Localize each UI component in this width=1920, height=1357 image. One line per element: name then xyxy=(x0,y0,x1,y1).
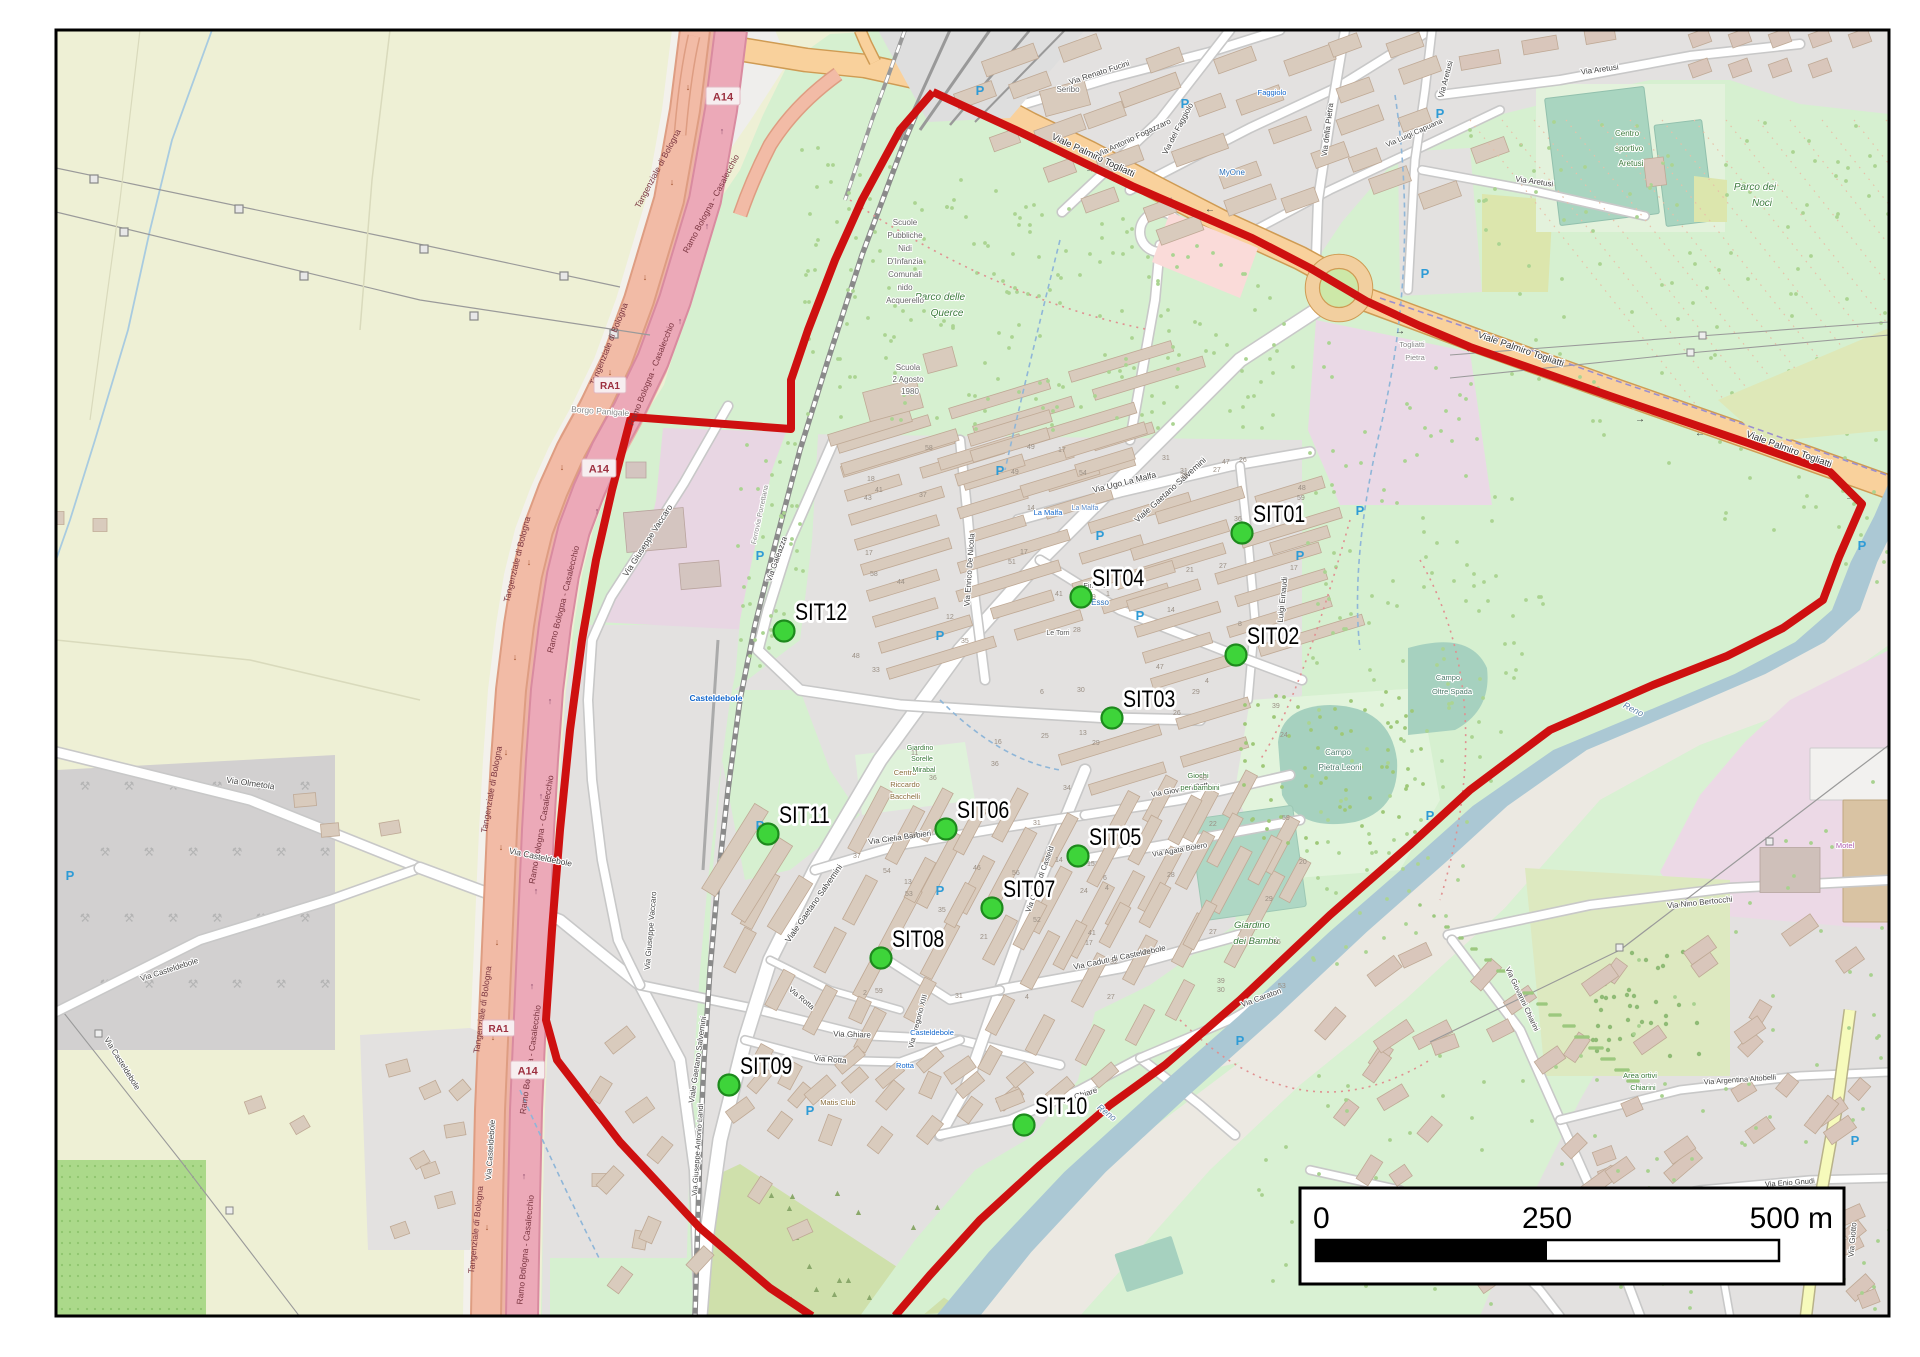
svg-text:▲: ▲ xyxy=(788,1191,797,1201)
svg-text:27: 27 xyxy=(1209,929,1217,936)
svg-text:⚒: ⚒ xyxy=(276,845,287,859)
svg-text:16: 16 xyxy=(994,739,1002,746)
svg-text:24: 24 xyxy=(1080,888,1088,895)
svg-text:SIT12: SIT12 xyxy=(795,598,847,626)
svg-text:P: P xyxy=(936,883,945,898)
svg-text:14: 14 xyxy=(1027,505,1035,512)
svg-text:17: 17 xyxy=(1020,549,1028,556)
svg-text:30: 30 xyxy=(1217,987,1225,994)
svg-text:1: 1 xyxy=(1106,591,1110,598)
svg-text:12: 12 xyxy=(946,614,954,621)
svg-text:SIT04: SIT04 xyxy=(1092,564,1144,592)
svg-text:⚒: ⚒ xyxy=(100,845,111,859)
svg-text:P: P xyxy=(1858,538,1867,553)
svg-text:500 m: 500 m xyxy=(1750,1202,1833,1235)
svg-text:250: 250 xyxy=(1522,1202,1572,1235)
svg-text:▲: ▲ xyxy=(835,1275,844,1285)
svg-text:47: 47 xyxy=(1156,664,1164,671)
svg-text:39: 39 xyxy=(1217,978,1225,985)
svg-text:↓: ↓ xyxy=(608,367,613,377)
svg-text:49: 49 xyxy=(1027,444,1035,451)
svg-text:29: 29 xyxy=(1092,740,1100,747)
svg-text:Matis Club: Matis Club xyxy=(820,1098,855,1107)
svg-text:P: P xyxy=(1096,528,1105,543)
svg-text:4: 4 xyxy=(1205,678,1209,685)
svg-text:→: → xyxy=(1635,414,1645,425)
svg-text:Via Ghiare: Via Ghiare xyxy=(833,1029,871,1039)
svg-text:Togliatti: Togliatti xyxy=(1399,340,1425,349)
svg-text:A14: A14 xyxy=(713,92,734,104)
svg-text:⚒: ⚒ xyxy=(232,977,243,991)
svg-text:P: P xyxy=(1436,106,1445,121)
svg-text:14: 14 xyxy=(1055,857,1063,864)
svg-text:SIT01: SIT01 xyxy=(1253,500,1305,528)
svg-text:Faggiolo: Faggiolo xyxy=(1258,88,1287,97)
svg-text:La Malfa: La Malfa xyxy=(1072,505,1099,512)
svg-text:47: 47 xyxy=(1222,459,1230,466)
svg-text:Nidi: Nidi xyxy=(898,244,912,253)
svg-text:53: 53 xyxy=(905,891,913,898)
svg-text:SIT03: SIT03 xyxy=(1123,685,1175,713)
svg-text:⚒: ⚒ xyxy=(80,779,91,793)
svg-text:Le Torri: Le Torri xyxy=(1046,630,1070,637)
svg-text:P: P xyxy=(66,868,75,883)
svg-text:↓: ↓ xyxy=(513,652,518,662)
svg-text:4: 4 xyxy=(1105,885,1109,892)
svg-text:21: 21 xyxy=(1143,949,1151,956)
svg-text:22: 22 xyxy=(1209,821,1217,828)
svg-text:Seribo: Seribo xyxy=(1056,85,1080,94)
svg-text:Mirabal: Mirabal xyxy=(913,767,936,774)
svg-text:nido: nido xyxy=(897,283,913,292)
svg-text:↑: ↑ xyxy=(530,981,535,991)
svg-text:Rotta: Rotta xyxy=(896,1061,915,1070)
svg-text:37: 37 xyxy=(919,492,927,499)
svg-text:per bambini: per bambini xyxy=(1180,783,1220,792)
svg-text:Area ortivi: Area ortivi xyxy=(1623,1071,1657,1080)
svg-text:43: 43 xyxy=(864,495,872,502)
svg-text:25: 25 xyxy=(1041,733,1049,740)
svg-text:↓: ↓ xyxy=(670,177,675,187)
svg-text:↑: ↑ xyxy=(548,696,553,706)
svg-text:P: P xyxy=(1236,1033,1245,1048)
svg-text:53: 53 xyxy=(1278,983,1286,990)
svg-text:↓: ↓ xyxy=(499,842,504,852)
svg-text:Noci: Noci xyxy=(1752,198,1773,209)
svg-text:Pietra Leoni: Pietra Leoni xyxy=(1319,763,1362,772)
svg-text:11: 11 xyxy=(911,750,918,757)
svg-text:44: 44 xyxy=(897,579,905,586)
svg-text:2: 2 xyxy=(863,990,867,997)
svg-text:15: 15 xyxy=(1087,861,1095,868)
svg-text:▲: ▲ xyxy=(830,1289,839,1299)
svg-text:P: P xyxy=(1356,503,1365,518)
svg-text:13: 13 xyxy=(1079,730,1087,737)
svg-text:27: 27 xyxy=(1213,467,1221,474)
svg-text:P: P xyxy=(1421,266,1430,281)
svg-text:54: 54 xyxy=(883,868,891,875)
svg-text:⚒: ⚒ xyxy=(144,845,155,859)
svg-text:▲: ▲ xyxy=(767,1190,776,1200)
svg-text:SIT10: SIT10 xyxy=(1035,1092,1087,1120)
svg-text:Campo: Campo xyxy=(1436,673,1460,682)
svg-text:sportivo: sportivo xyxy=(1615,144,1644,153)
svg-text:58: 58 xyxy=(870,571,878,578)
svg-text:Chiarini: Chiarini xyxy=(1630,1083,1656,1092)
svg-text:A14: A14 xyxy=(589,464,610,476)
svg-text:SIT06: SIT06 xyxy=(957,796,1009,824)
svg-text:31: 31 xyxy=(955,993,963,1000)
svg-text:⚒: ⚒ xyxy=(300,779,311,793)
svg-text:27: 27 xyxy=(1219,563,1227,570)
svg-text:⚒: ⚒ xyxy=(80,911,91,925)
svg-text:27: 27 xyxy=(1107,994,1115,1001)
svg-text:P: P xyxy=(806,1103,815,1118)
svg-text:36: 36 xyxy=(1273,939,1281,946)
svg-text:▲: ▲ xyxy=(909,1222,918,1232)
svg-text:SIT11: SIT11 xyxy=(779,801,830,829)
svg-text:29: 29 xyxy=(1192,689,1200,696)
svg-text:P: P xyxy=(996,463,1005,478)
svg-text:36: 36 xyxy=(991,761,999,768)
svg-text:58: 58 xyxy=(1199,775,1207,782)
svg-text:P: P xyxy=(936,628,945,643)
svg-text:33: 33 xyxy=(872,667,880,674)
svg-text:20: 20 xyxy=(1299,859,1307,866)
svg-text:⚒: ⚒ xyxy=(188,977,199,991)
svg-text:▲: ▲ xyxy=(854,1207,863,1217)
svg-text:↑: ↑ xyxy=(678,316,683,326)
svg-text:↑: ↑ xyxy=(720,126,725,136)
svg-text:P: P xyxy=(1296,548,1305,563)
svg-text:P: P xyxy=(1181,96,1190,111)
svg-text:6: 6 xyxy=(1040,689,1044,696)
svg-text:⚒: ⚒ xyxy=(212,911,223,925)
svg-text:Scuole: Scuole xyxy=(893,218,918,227)
svg-text:▲: ▲ xyxy=(833,1188,842,1198)
svg-text:Pietra: Pietra xyxy=(1405,353,1425,362)
svg-text:24: 24 xyxy=(1280,732,1288,739)
svg-text:26: 26 xyxy=(1239,457,1247,464)
svg-text:32: 32 xyxy=(1110,959,1118,966)
svg-text:Sorelle: Sorelle xyxy=(911,756,933,763)
svg-text:⚒: ⚒ xyxy=(320,977,331,991)
svg-text:SIT07: SIT07 xyxy=(1003,875,1055,903)
svg-text:SIT08: SIT08 xyxy=(892,925,944,953)
svg-text:39: 39 xyxy=(1272,703,1280,710)
svg-text:Motel: Motel xyxy=(1836,841,1855,850)
svg-text:⚒: ⚒ xyxy=(124,911,135,925)
svg-text:Bacchelli: Bacchelli xyxy=(890,792,920,801)
svg-text:La Malfa: La Malfa xyxy=(1034,508,1064,517)
svg-text:↑: ↑ xyxy=(522,1171,527,1181)
svg-text:▲: ▲ xyxy=(844,1275,853,1285)
svg-text:SIT09: SIT09 xyxy=(740,1052,792,1080)
svg-text:⚒: ⚒ xyxy=(276,977,287,991)
svg-text:Casteldebole: Casteldebole xyxy=(690,693,743,703)
svg-text:29: 29 xyxy=(1265,896,1273,903)
svg-text:28: 28 xyxy=(1073,627,1081,634)
svg-text:35: 35 xyxy=(938,907,946,914)
svg-text:21: 21 xyxy=(1186,567,1194,574)
svg-text:37: 37 xyxy=(853,853,861,860)
svg-text:⚒: ⚒ xyxy=(232,845,243,859)
svg-text:17: 17 xyxy=(1058,447,1066,454)
svg-text:↓: ↓ xyxy=(560,462,565,472)
svg-text:Querce: Querce xyxy=(931,308,964,319)
svg-text:P: P xyxy=(756,548,765,563)
svg-text:SIT02: SIT02 xyxy=(1247,622,1299,650)
svg-text:17: 17 xyxy=(1085,940,1093,947)
svg-text:↓: ↓ xyxy=(485,1222,490,1232)
svg-text:54: 54 xyxy=(1079,470,1087,477)
svg-text:Pubbliche: Pubbliche xyxy=(887,231,923,240)
svg-text:MyOne: MyOne xyxy=(1219,168,1245,177)
svg-text:14: 14 xyxy=(1167,607,1175,614)
svg-text:35: 35 xyxy=(961,638,969,645)
svg-text:34: 34 xyxy=(1063,785,1071,792)
svg-text:▲: ▲ xyxy=(812,1284,821,1294)
svg-text:17: 17 xyxy=(1290,565,1298,572)
svg-text:31: 31 xyxy=(1033,820,1041,827)
svg-text:36: 36 xyxy=(909,832,917,839)
svg-text:8: 8 xyxy=(1238,621,1242,628)
svg-text:RA1: RA1 xyxy=(600,381,620,392)
svg-text:1980: 1980 xyxy=(901,387,919,396)
svg-text:41: 41 xyxy=(1088,930,1096,937)
svg-text:⚒: ⚒ xyxy=(320,845,331,859)
svg-text:2 Agosto: 2 Agosto xyxy=(892,375,924,384)
svg-text:13: 13 xyxy=(904,879,912,886)
svg-text:Riccardo: Riccardo xyxy=(890,780,920,789)
svg-text:⚒: ⚒ xyxy=(188,845,199,859)
svg-text:A14: A14 xyxy=(518,1066,539,1078)
svg-text:↓: ↓ xyxy=(504,747,509,757)
svg-text:Aretusi: Aretusi xyxy=(1619,159,1644,168)
svg-text:Scuola: Scuola xyxy=(896,363,921,372)
svg-text:↓: ↓ xyxy=(643,272,648,282)
svg-text:↓: ↓ xyxy=(686,82,691,92)
svg-text:46: 46 xyxy=(973,865,981,872)
svg-text:0: 0 xyxy=(1313,1202,1330,1235)
svg-text:58: 58 xyxy=(925,445,933,452)
svg-text:RA1: RA1 xyxy=(489,1024,509,1035)
svg-text:Oltre Spada: Oltre Spada xyxy=(1432,687,1473,696)
svg-text:48: 48 xyxy=(1298,485,1306,492)
svg-text:Giardino: Giardino xyxy=(1234,920,1270,931)
svg-text:⚒: ⚒ xyxy=(168,911,179,925)
svg-text:P: P xyxy=(1136,608,1145,623)
svg-text:←: ← xyxy=(1205,204,1215,215)
svg-text:35: 35 xyxy=(1180,473,1188,480)
svg-text:P: P xyxy=(1426,808,1435,823)
svg-text:28: 28 xyxy=(1167,872,1175,879)
svg-text:18: 18 xyxy=(867,476,875,483)
svg-text:36: 36 xyxy=(929,775,937,782)
svg-text:49: 49 xyxy=(1011,469,1019,476)
svg-text:D'Infanzia: D'Infanzia xyxy=(887,257,923,266)
svg-text:P: P xyxy=(976,83,985,98)
svg-text:Casteldebole: Casteldebole xyxy=(910,1028,954,1037)
svg-text:Campo: Campo xyxy=(1325,748,1351,757)
svg-text:21: 21 xyxy=(980,934,988,941)
svg-text:P: P xyxy=(1851,1133,1860,1148)
svg-text:Parco dei: Parco dei xyxy=(1734,182,1777,193)
svg-text:48: 48 xyxy=(852,653,860,660)
svg-text:⚒: ⚒ xyxy=(124,779,135,793)
svg-text:Comunali: Comunali xyxy=(888,270,922,279)
svg-text:SIT05: SIT05 xyxy=(1089,823,1141,851)
svg-text:41: 41 xyxy=(1055,591,1063,598)
svg-text:4: 4 xyxy=(1025,994,1029,1001)
svg-text:▲: ▲ xyxy=(805,1261,814,1271)
svg-text:→: → xyxy=(1395,326,1405,337)
svg-text:51: 51 xyxy=(1008,559,1016,566)
svg-text:30: 30 xyxy=(1077,687,1085,694)
svg-text:↓: ↓ xyxy=(527,557,532,567)
svg-text:59: 59 xyxy=(1282,815,1290,822)
svg-text:52: 52 xyxy=(1033,917,1041,924)
svg-text:17: 17 xyxy=(865,550,873,557)
svg-text:▲: ▲ xyxy=(785,1203,794,1213)
svg-text:Acquerello: Acquerello xyxy=(886,296,924,305)
svg-text:↑: ↑ xyxy=(595,506,600,516)
svg-text:6: 6 xyxy=(1103,875,1107,882)
svg-text:Centro: Centro xyxy=(1615,129,1640,138)
svg-text:41: 41 xyxy=(875,487,883,494)
svg-text:59: 59 xyxy=(875,988,883,995)
svg-text:31: 31 xyxy=(1162,455,1170,462)
svg-text:↓: ↓ xyxy=(495,937,500,947)
svg-text:↑: ↑ xyxy=(534,886,539,896)
